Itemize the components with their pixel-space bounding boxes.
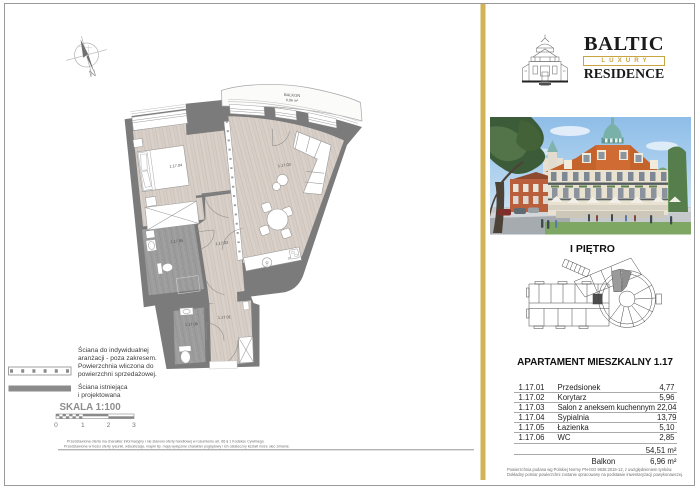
svg-text:1: 1 (81, 422, 85, 429)
svg-text:2: 2 (107, 422, 111, 429)
svg-text:Przedstawiona oferta ma charak: Przedstawiona oferta ma charakter inform… (67, 439, 264, 443)
svg-text:Ściana do indywidualnej: Ściana do indywidualnej (78, 345, 149, 354)
svg-text:N: N (88, 68, 98, 80)
svg-text:SKALA 1:100: SKALA 1:100 (60, 402, 122, 413)
svg-text:aranżacji - poza zakresem.: aranżacji - poza zakresem. (78, 355, 157, 362)
svg-text:3: 3 (132, 422, 136, 429)
svg-text:Ściana istniejąca: Ściana istniejąca (78, 382, 128, 391)
svg-text:0: 0 (54, 422, 58, 429)
svg-text:Przedstawione w treści oferty: Przedstawione w treści oferty rysunki, w… (64, 444, 290, 448)
svg-text:1.17.01: 1.17.01 (218, 314, 231, 320)
svg-text:Powierzchnia wliczona do: Powierzchnia wliczona do (78, 363, 154, 370)
svg-text:powierzchni sprzedażowej.: powierzchni sprzedażowej. (78, 371, 157, 378)
svg-text:1.17.06: 1.17.06 (185, 321, 198, 327)
svg-text:i projektowana: i projektowana (78, 392, 121, 399)
